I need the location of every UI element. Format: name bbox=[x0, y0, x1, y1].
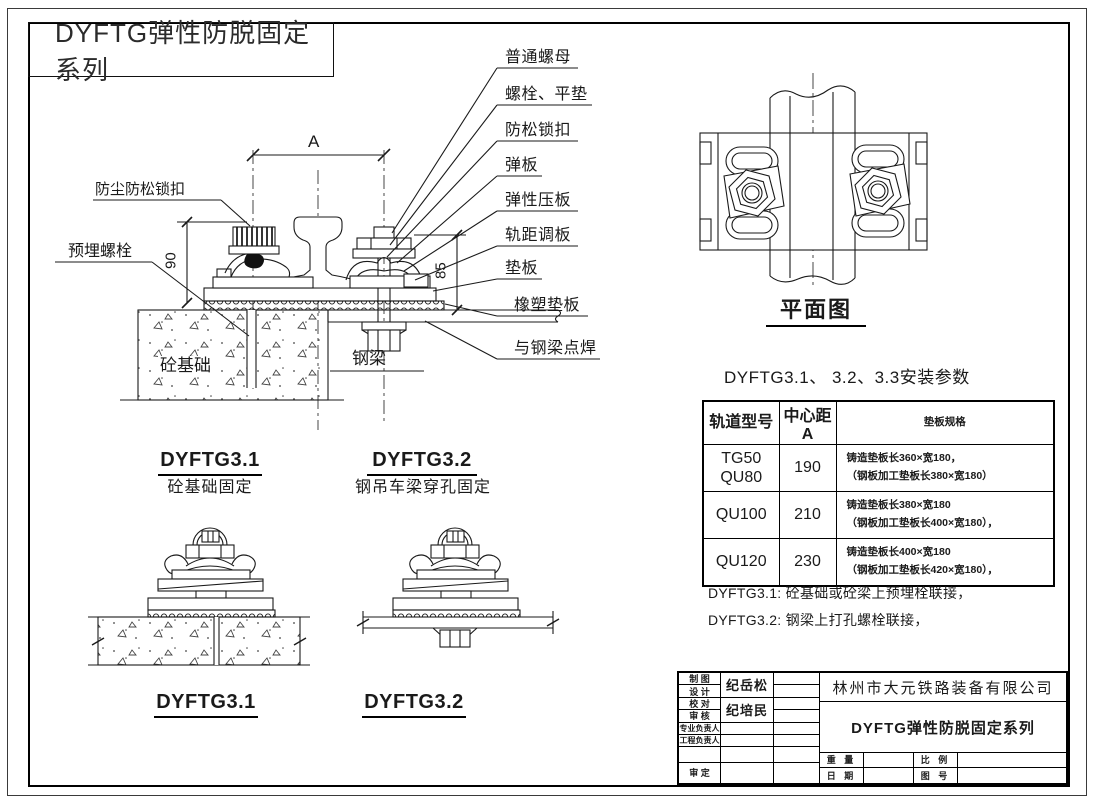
params-table-header-row: 轨道型号 中心距 A 垫板规格 bbox=[703, 401, 1054, 445]
callout-elastic-clamp: 弹性压板 bbox=[505, 192, 571, 210]
table-row: TG50 QU80 190 铸造垫板长360×宽180， （钢板加工垫板长380… bbox=[703, 445, 1054, 492]
field-date: 日 期 bbox=[820, 768, 864, 784]
note-dyftg32: DYFTG3.2: 钢梁上打孔螺栓联接， bbox=[708, 612, 929, 628]
plate-spec-line: （钢板加工垫板长420×宽180）， bbox=[847, 562, 1054, 580]
title-block-signatures: 制 图 纪岳松 设 计 校 对 纪培民 审 核 专业负责人 工程负责人 审 定 bbox=[679, 673, 820, 783]
heading-dyftg31: DYFTG3.1 bbox=[158, 449, 262, 476]
callout-spring-plate: 弹板 bbox=[505, 157, 538, 175]
field-drawing-no: 图 号 bbox=[914, 768, 958, 784]
title-block: 制 图 纪岳松 设 计 校 对 纪培民 审 核 专业负责人 工程负责人 审 定 … bbox=[677, 671, 1068, 785]
designer-name: 纪岳松 bbox=[721, 673, 774, 698]
callout-rubber-pad: 橡塑垫板 bbox=[514, 297, 580, 315]
note-dyftg31: DYFTG3.1: 砼基础或砼梁上预埋栓联接， bbox=[708, 585, 972, 601]
drawing-no-value bbox=[958, 768, 1066, 784]
heading-dyftg32: DYFTG3.2 bbox=[367, 449, 477, 476]
field-discipline-lead: 专业负责人 bbox=[679, 723, 721, 735]
subtitle-dyftg32: 钢吊车梁穿孔固定 bbox=[352, 479, 494, 497]
label-embedded-bolt: 预埋螺栓 bbox=[68, 243, 132, 261]
params-table: 轨道型号 中心距 A 垫板规格 TG50 QU80 190 铸造垫板长360×宽… bbox=[702, 400, 1055, 587]
label-concrete-foundation: 砼基础 bbox=[158, 356, 213, 376]
dim-label-90: 90 bbox=[163, 252, 180, 269]
callout-spot-weld: 与钢梁点焊 bbox=[514, 340, 597, 358]
plan-view-title: 平面图 bbox=[766, 297, 866, 327]
plate-spec-line: （钢板加工垫板长380×宽180） bbox=[847, 468, 1054, 486]
plate-spec-line: （钢板加工垫板长400×宽180）， bbox=[847, 515, 1054, 533]
params-table-title: DYFTG3.1、 3.2、3.3安装参数 bbox=[724, 368, 964, 388]
field-scale: 比 例 bbox=[914, 753, 958, 768]
plate-spec-line: 铸造垫板长360×宽180， bbox=[847, 450, 1054, 468]
sheet-title: DYFTG弹性防脱固定系列 bbox=[55, 13, 333, 87]
rail-model: QU120 bbox=[703, 539, 779, 586]
field-weight: 重 量 bbox=[820, 753, 864, 768]
header-rail-model: 轨道型号 bbox=[703, 401, 779, 445]
bottom-label-dyftg31: DYFTG3.1 bbox=[154, 691, 258, 718]
field-approver: 审 定 bbox=[679, 763, 721, 783]
rail-model: QU80 bbox=[704, 468, 779, 487]
center-distance-value: 230 bbox=[779, 539, 836, 586]
callout-bolt-flat-washer: 螺栓、平垫 bbox=[505, 86, 588, 104]
bottom-label-dyftg32: DYFTG3.2 bbox=[362, 691, 466, 718]
label-steel-beam: 钢梁 bbox=[352, 349, 386, 369]
table-row: QU100 210 铸造垫板长380×宽180 （钢板加工垫板长400×宽180… bbox=[703, 492, 1054, 539]
company-name: 林州市大元铁路装备有限公司 bbox=[820, 673, 1066, 702]
field-designer: 设 计 bbox=[679, 685, 721, 697]
callout-anti-loose-lock: 防松锁扣 bbox=[505, 122, 571, 140]
header-center-distance: 中心距 A bbox=[779, 401, 836, 445]
dim-label-a: A bbox=[308, 132, 319, 152]
rail-model: QU100 bbox=[703, 492, 779, 539]
dim-label-85: 85 bbox=[433, 262, 450, 279]
callout-common-nut: 普通螺母 bbox=[505, 49, 571, 67]
table-row: QU120 230 铸造垫板长400×宽180 （钢板加工垫板长420×宽180… bbox=[703, 539, 1054, 586]
field-checker: 校 对 bbox=[679, 698, 721, 710]
callout-gauge-adjust-plate: 轨距调板 bbox=[505, 227, 571, 245]
center-distance-value: 190 bbox=[779, 445, 836, 492]
auditor-name: 纪培民 bbox=[721, 698, 774, 723]
subtitle-dyftg31: 砼基础固定 bbox=[147, 479, 273, 497]
title-block-fields: 重 量 比 例 日 期 图 号 bbox=[820, 753, 1066, 783]
product-title: DYFTG弹性防脱固定系列 bbox=[820, 702, 1066, 753]
rail-model: TG50 bbox=[704, 449, 779, 468]
plate-spec-line: 铸造垫板长380×宽180 bbox=[847, 497, 1054, 515]
field-drafter: 制 图 bbox=[679, 673, 721, 685]
field-auditor: 审 核 bbox=[679, 710, 721, 722]
plate-spec-line: 铸造垫板长400×宽180 bbox=[847, 544, 1054, 562]
date-value bbox=[864, 768, 914, 784]
header-plate-spec: 垫板规格 bbox=[836, 401, 1054, 445]
field-project-lead: 工程负责人 bbox=[679, 735, 721, 747]
weight-value bbox=[864, 753, 914, 768]
sheet-title-box: DYFTG弹性防脱固定系列 bbox=[28, 22, 334, 77]
scale-value bbox=[958, 753, 1066, 768]
drawing-sheet: DYFTG弹性防脱固定系列 普通螺母 螺栓、平垫 防松锁扣 弹板 弹性压板 轨距… bbox=[0, 0, 1094, 804]
title-block-main: 林州市大元铁路装备有限公司 DYFTG弹性防脱固定系列 重 量 比 例 日 期 … bbox=[820, 673, 1066, 783]
label-dust-anti-loose-lock: 防尘防松锁扣 bbox=[95, 181, 185, 198]
callout-base-plate: 垫板 bbox=[505, 260, 538, 278]
center-distance-value: 210 bbox=[779, 492, 836, 539]
